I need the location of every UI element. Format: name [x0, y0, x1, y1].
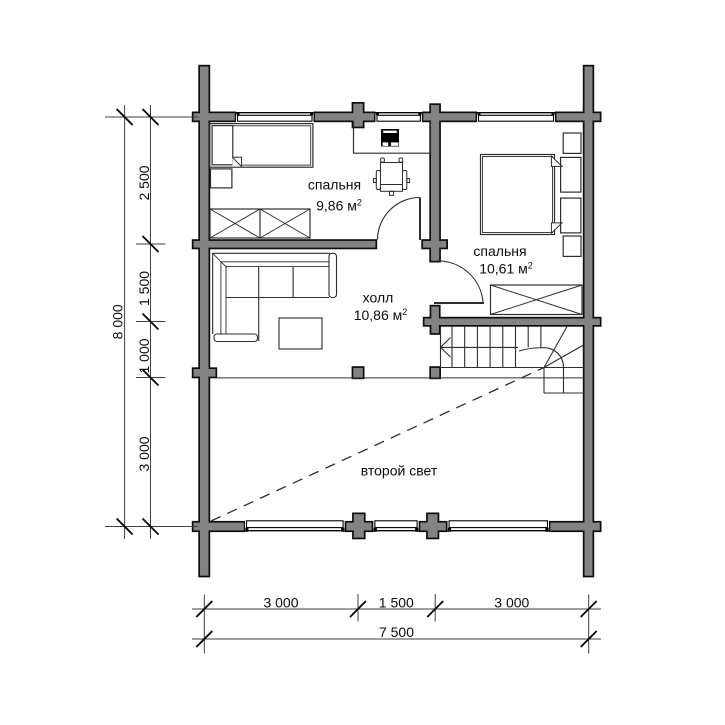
svg-text:3 000: 3 000 — [263, 594, 298, 610]
svg-text:9,86 м2: 9,86 м2 — [316, 197, 362, 213]
svg-text:1 500: 1 500 — [136, 271, 152, 306]
svg-text:3 000: 3 000 — [494, 594, 529, 610]
svg-text:холл: холл — [363, 289, 394, 305]
svg-text:спальня: спальня — [308, 177, 361, 193]
svg-text:8 000: 8 000 — [110, 304, 126, 339]
svg-text:второй свет: второй свет — [361, 463, 438, 479]
svg-text:1 000: 1 000 — [136, 338, 152, 373]
svg-text:1 500: 1 500 — [379, 594, 414, 610]
svg-text:7 500: 7 500 — [379, 624, 414, 640]
svg-text:3 000: 3 000 — [136, 436, 152, 471]
svg-text:спальня: спальня — [473, 243, 526, 259]
svg-text:10,61 м2: 10,61 м2 — [479, 261, 533, 277]
svg-text:10,86 м2: 10,86 м2 — [354, 307, 408, 323]
svg-text:2 500: 2 500 — [136, 165, 152, 200]
